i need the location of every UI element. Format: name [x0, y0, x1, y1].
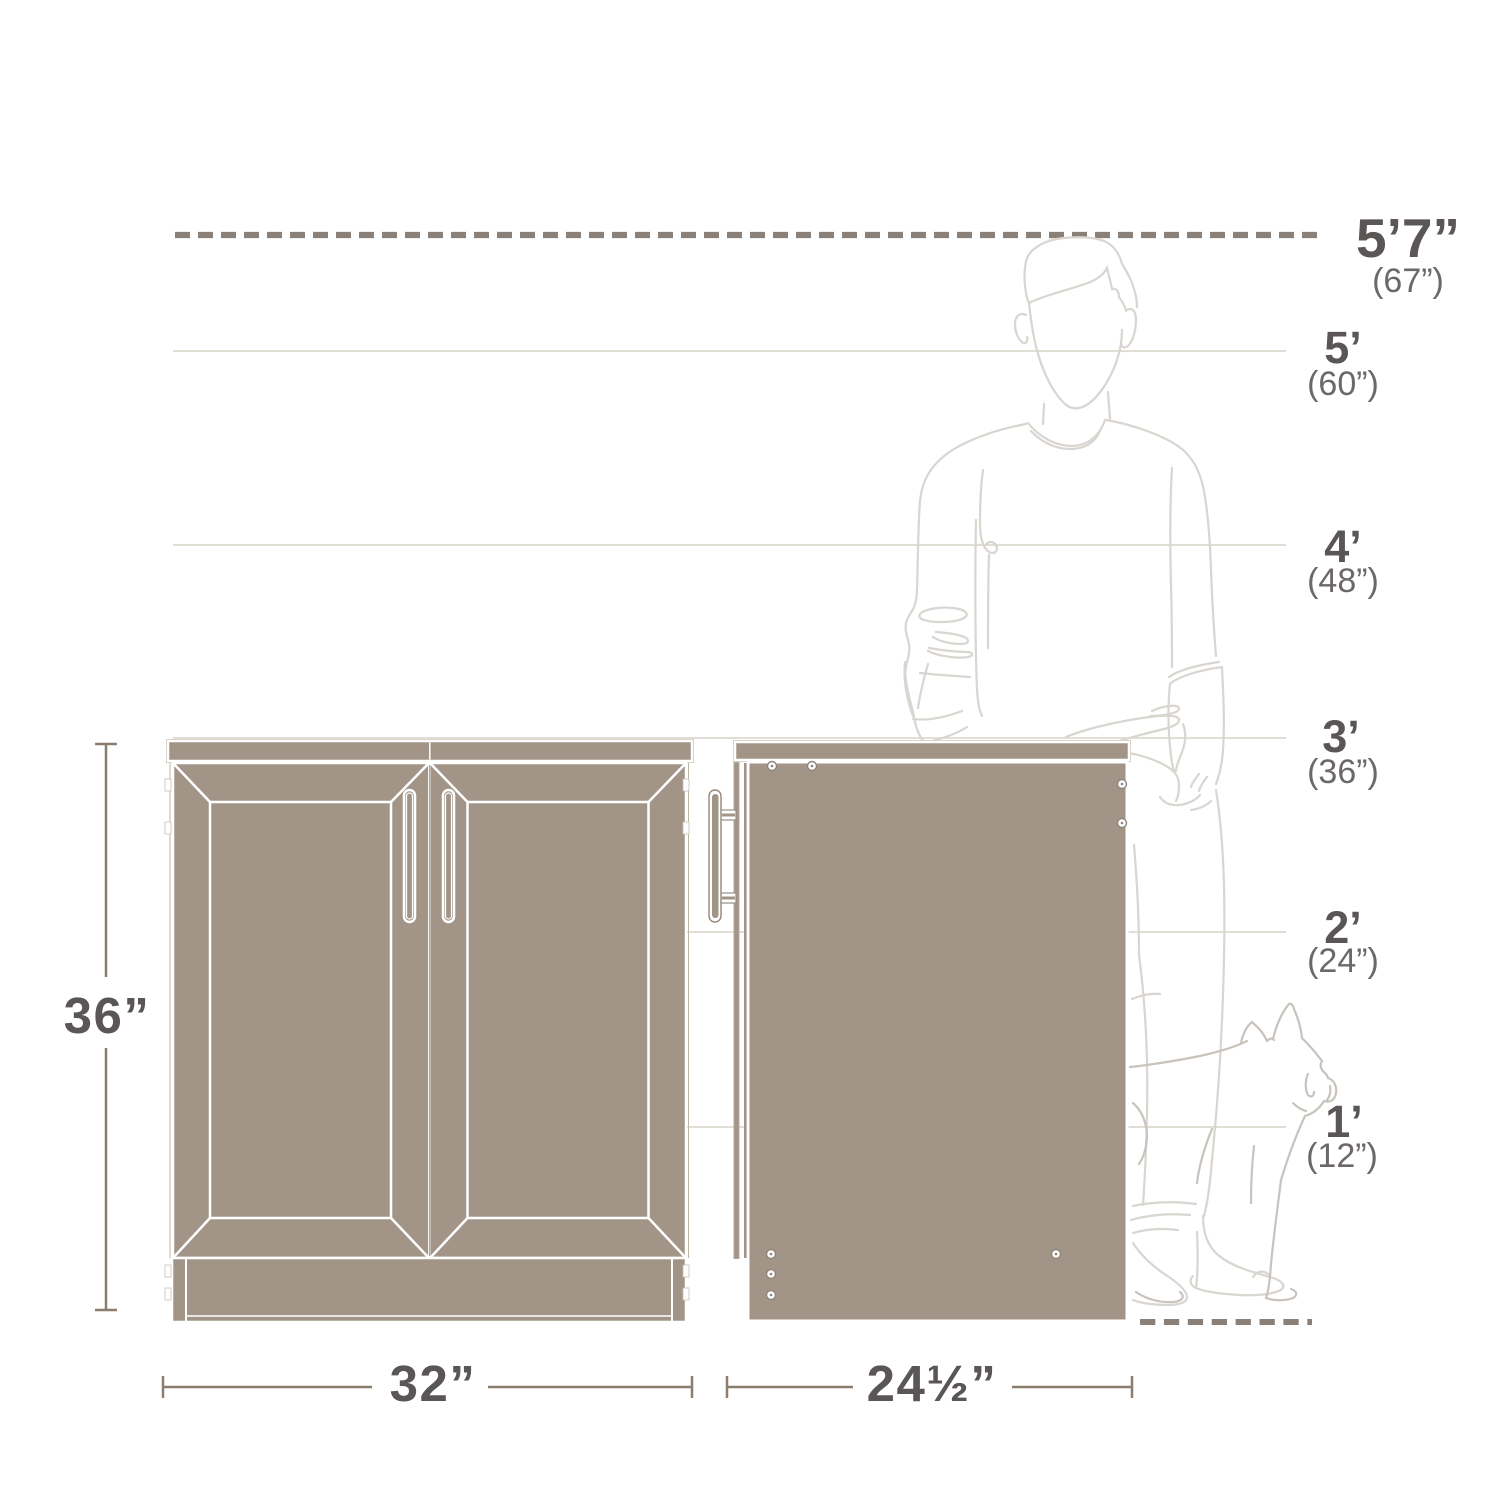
svg-text:(67”): (67”): [1372, 262, 1444, 300]
svg-text:(24”): (24”): [1307, 942, 1379, 980]
svg-text:32”: 32”: [390, 1355, 477, 1412]
svg-text:(60”): (60”): [1307, 365, 1379, 403]
svg-text:(48”): (48”): [1307, 562, 1379, 600]
svg-text:5’7”: 5’7”: [1356, 207, 1460, 269]
svg-text:36”: 36”: [64, 987, 151, 1044]
svg-text:(36”): (36”): [1307, 753, 1379, 791]
svg-text:24½”: 24½”: [867, 1355, 998, 1412]
svg-text:(12”): (12”): [1306, 1137, 1378, 1175]
